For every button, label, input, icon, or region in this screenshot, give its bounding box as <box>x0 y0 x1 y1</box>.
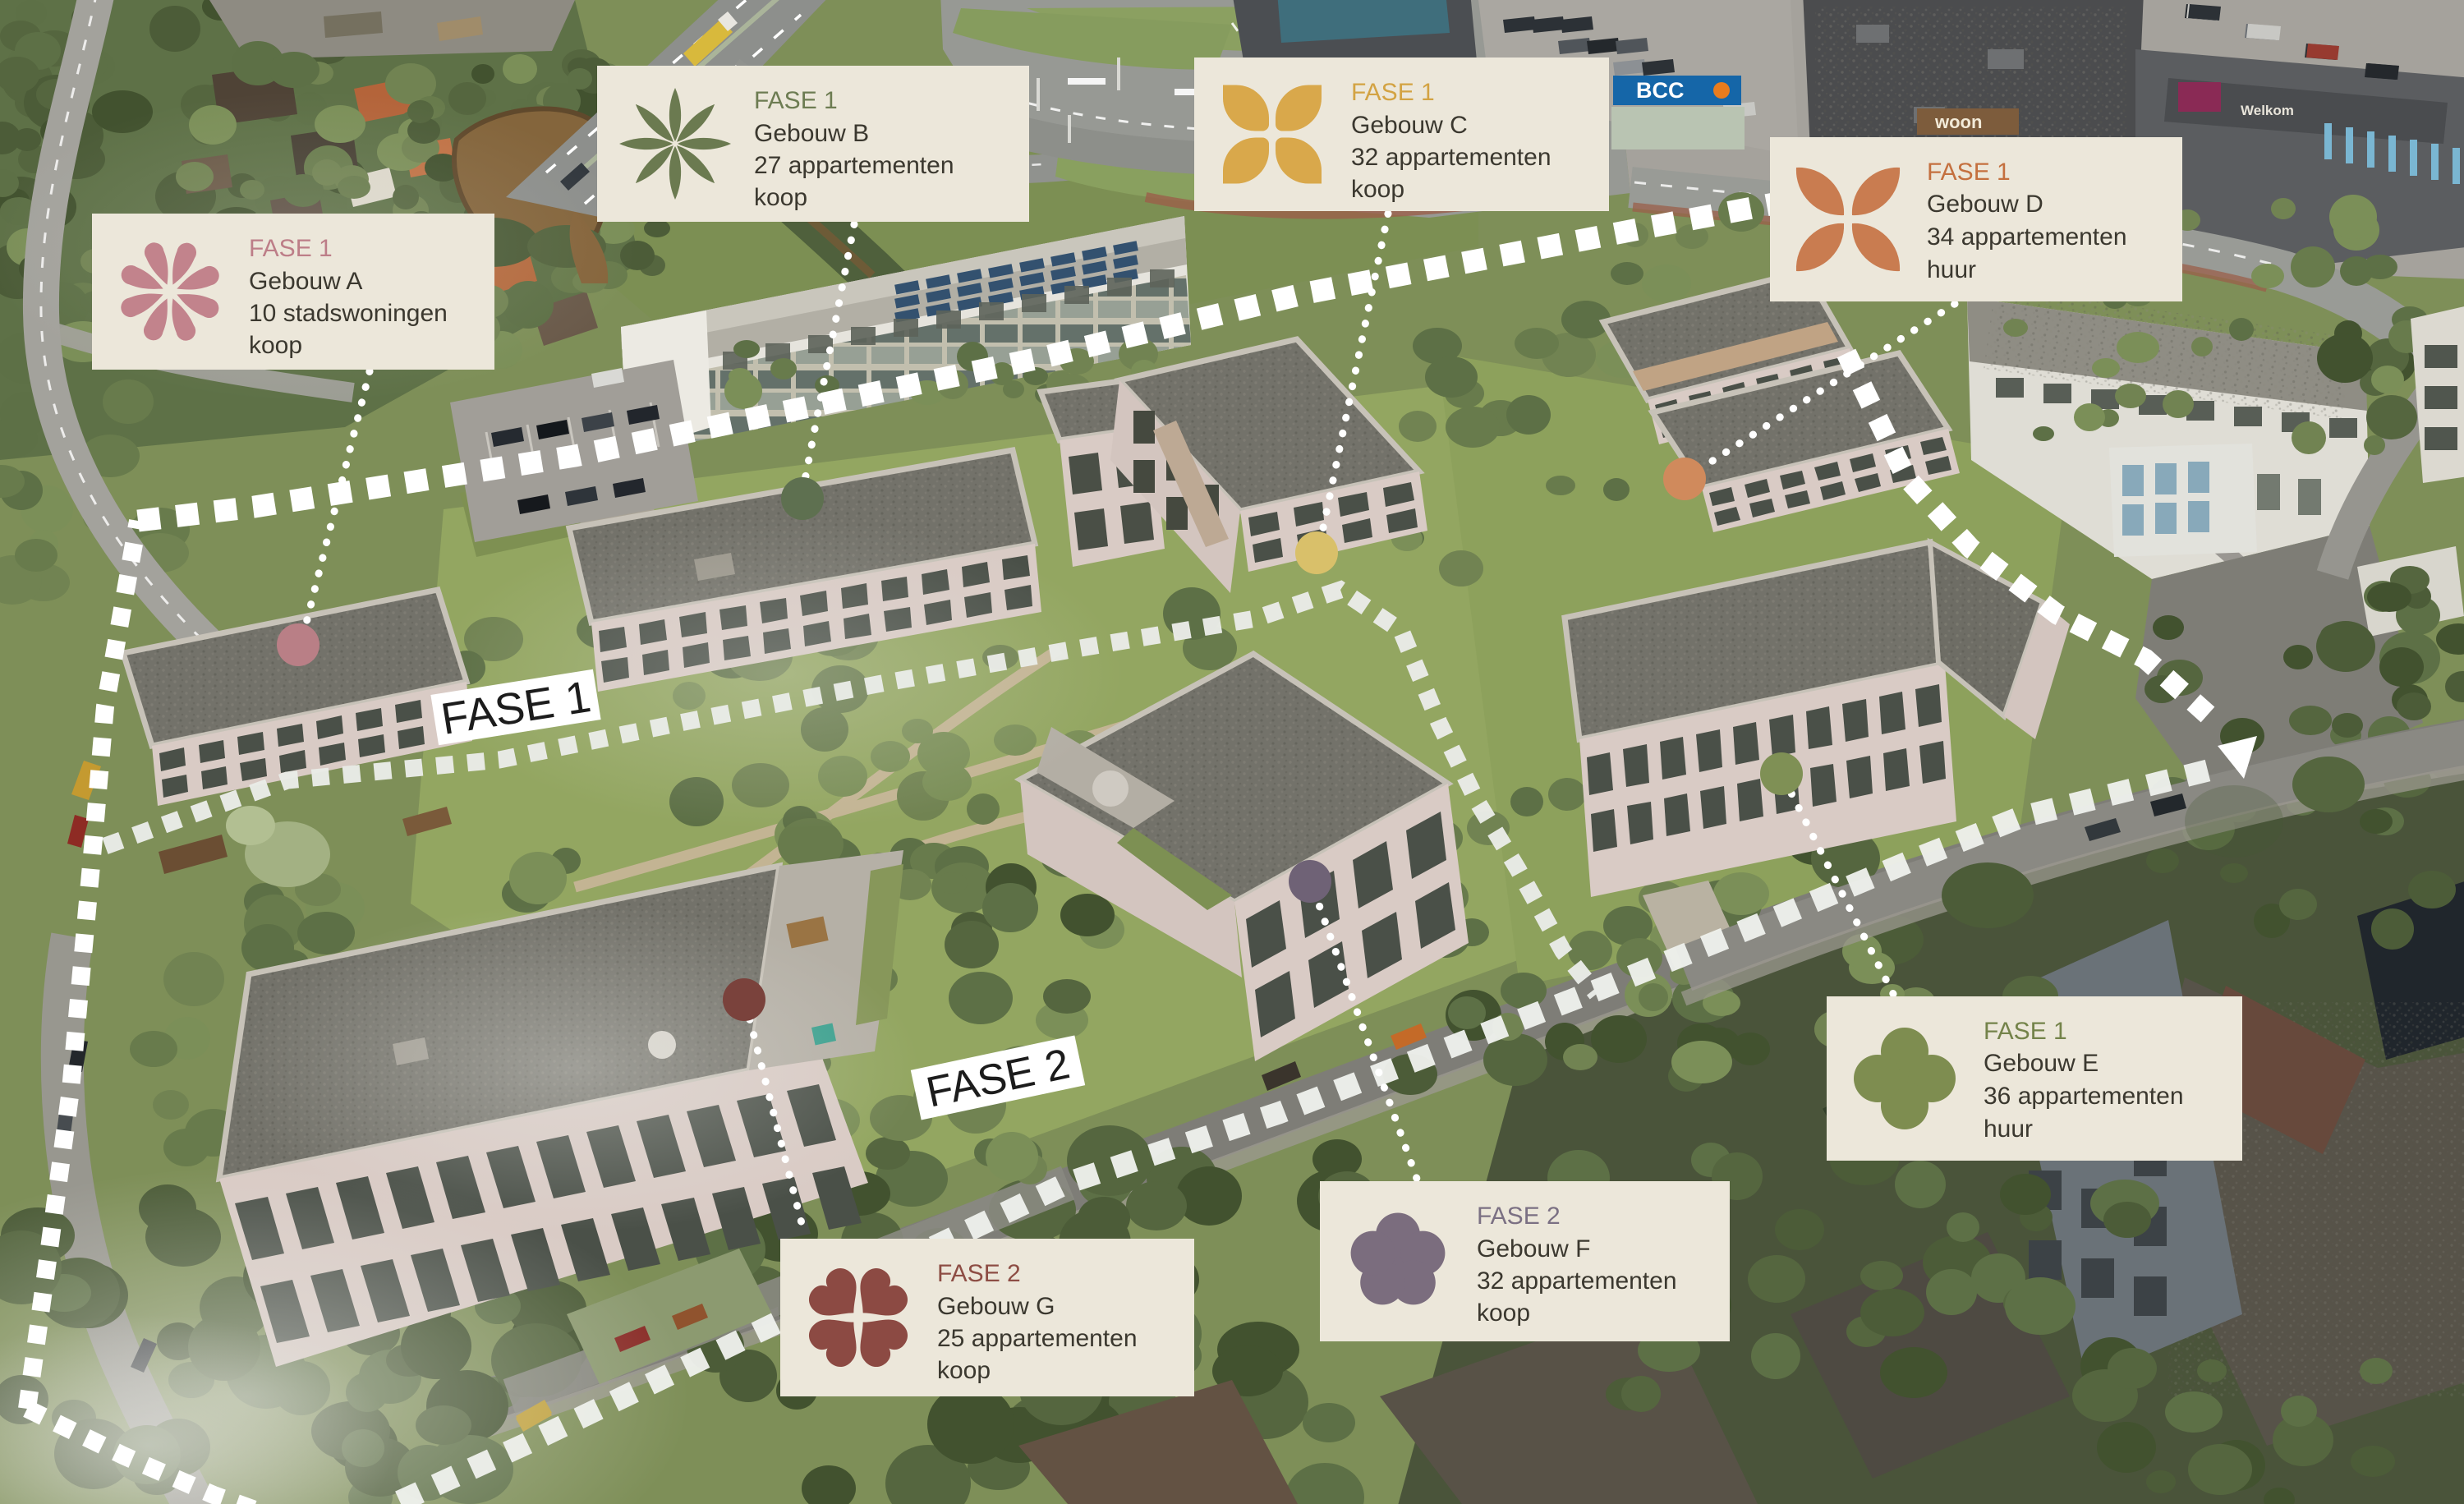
svg-text:koop: koop <box>937 1357 991 1384</box>
svg-text:koop: koop <box>249 332 302 359</box>
svg-text:27 appartementen: 27 appartementen <box>754 152 954 179</box>
svg-text:Welkom: Welkom <box>2241 103 2294 118</box>
svg-text:BCC: BCC <box>1636 78 1685 103</box>
svg-text:FASE 1: FASE 1 <box>1351 79 1435 106</box>
svg-text:FASE 1: FASE 1 <box>1927 159 2011 186</box>
svg-text:10 stadswoningen: 10 stadswoningen <box>249 300 448 327</box>
svg-text:koop: koop <box>1477 1299 1530 1327</box>
svg-text:34 appartementen: 34 appartementen <box>1927 223 2127 251</box>
svg-text:Gebouw E: Gebouw E <box>1984 1050 2099 1077</box>
svg-text:Gebouw D: Gebouw D <box>1927 191 2043 218</box>
svg-text:huur: huur <box>1927 256 1976 283</box>
svg-text:woon: woon <box>1934 112 1982 132</box>
svg-text:Gebouw F: Gebouw F <box>1477 1235 1590 1263</box>
svg-text:25 appartementen: 25 appartementen <box>937 1325 1138 1352</box>
svg-text:koop: koop <box>754 184 807 211</box>
svg-text:FASE 1: FASE 1 <box>1984 1018 2067 1045</box>
svg-text:32 appartementen: 32 appartementen <box>1351 144 1551 171</box>
svg-text:FASE 1: FASE 1 <box>754 87 838 114</box>
svg-text:Gebouw B: Gebouw B <box>754 120 869 147</box>
svg-text:32 appartementen: 32 appartementen <box>1477 1267 1677 1295</box>
svg-text:36 appartementen: 36 appartementen <box>1984 1083 2184 1110</box>
svg-text:huur: huur <box>1984 1115 2033 1143</box>
svg-text:FASE 2: FASE 2 <box>1477 1203 1561 1230</box>
svg-text:FASE 1: FASE 1 <box>249 235 333 262</box>
svg-text:Gebouw C: Gebouw C <box>1351 112 1468 139</box>
svg-text:koop: koop <box>1351 176 1404 203</box>
svg-text:FASE 2: FASE 2 <box>937 1260 1021 1287</box>
svg-text:Gebouw G: Gebouw G <box>937 1293 1055 1320</box>
svg-text:Gebouw A: Gebouw A <box>249 268 362 295</box>
